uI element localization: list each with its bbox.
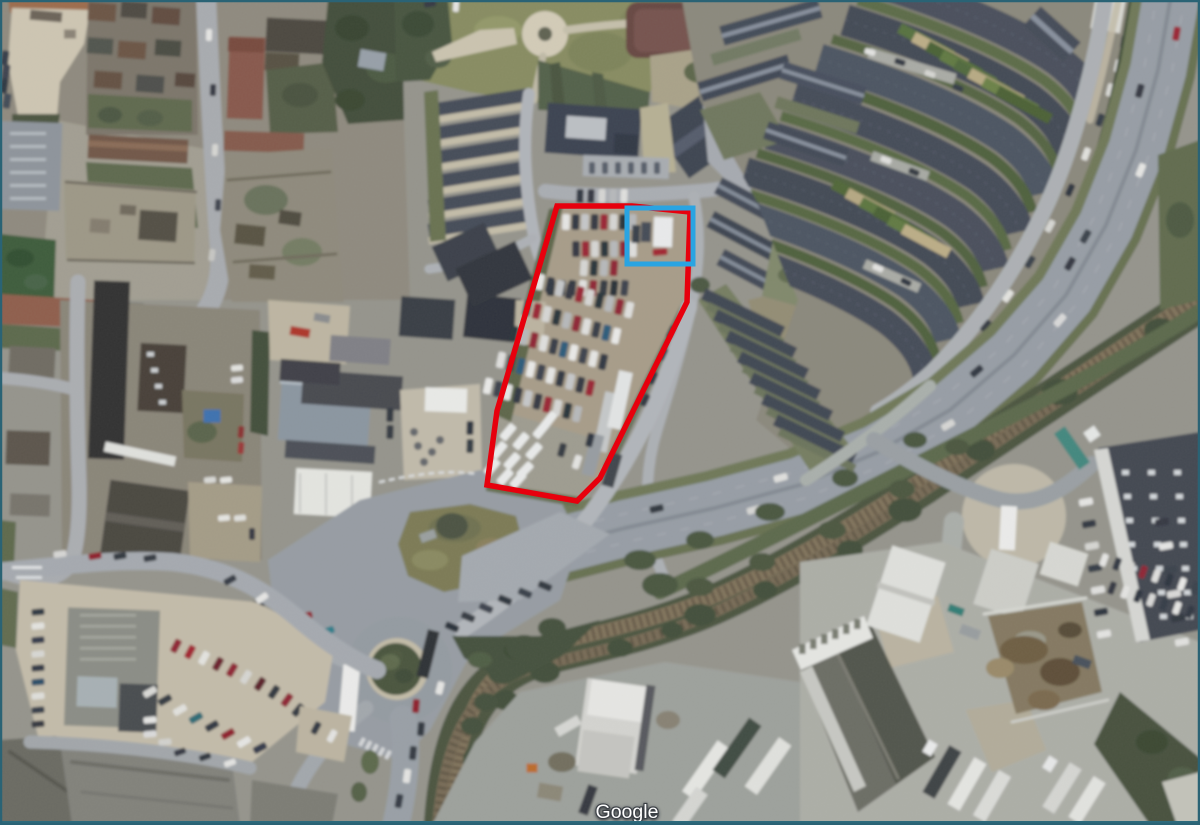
svg-text:Google: Google: [596, 801, 659, 823]
